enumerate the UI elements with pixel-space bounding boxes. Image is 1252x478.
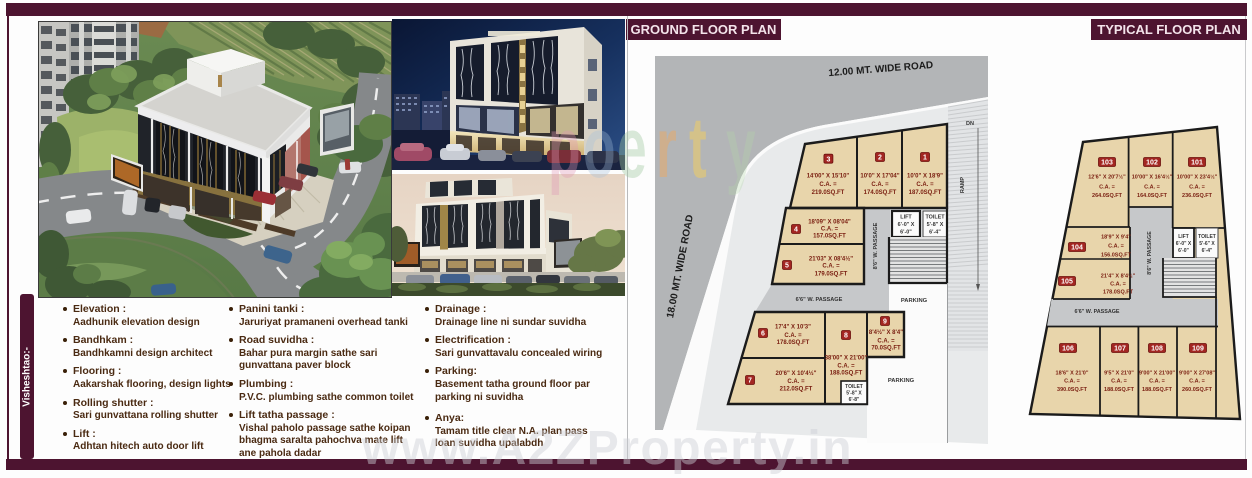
svg-text:188.0SQ.FT: 188.0SQ.FT [830,371,863,377]
svg-text:6'-0" X: 6'-0" X [1176,241,1192,247]
svg-text:18'09" X 08'04": 18'09" X 08'04" [808,219,851,225]
svg-text:C.A. =: C.A. = [877,338,895,344]
svg-text:188.0SQ.FT: 188.0SQ.FT [1104,387,1135,393]
svg-text:20'6" X 10'4½": 20'6" X 10'4½" [776,370,817,377]
svg-text:1: 1 [923,155,927,162]
svg-text:5: 5 [785,263,789,270]
svg-text:18'9" X 9'4": 18'9" X 9'4" [1101,234,1131,240]
svg-text:5'-8" X: 5'-8" X [927,222,944,228]
svg-text:6'-4": 6'-4" [929,230,941,236]
svg-text:TOILET: TOILET [925,215,945,221]
svg-text:C.A. =: C.A. = [1144,185,1160,191]
svg-text:5'-8" X: 5'-8" X [846,391,862,397]
svg-text:LIFT: LIFT [1178,234,1189,240]
svg-text:RAMP: RAMP [960,177,966,194]
svg-text:12'6" X 20'7½": 12'6" X 20'7½" [1088,174,1126,181]
svg-text:2: 2 [878,155,882,162]
svg-text:C.A. =: C.A. = [1111,379,1127,385]
svg-text:6'-4": 6'-4" [1202,248,1213,254]
svg-text:C.A. =: C.A. = [1064,379,1080,385]
svg-text:219.0SQ.FT: 219.0SQ.FT [812,190,845,196]
svg-text:PARKING: PARKING [901,298,928,304]
svg-text:102: 102 [1146,160,1158,167]
svg-text:10'0" X 18'9": 10'0" X 18'9" [907,174,943,180]
svg-text:14'00" X 15'10": 14'00" X 15'10" [807,174,850,180]
svg-text:187.0SQ.FT: 187.0SQ.FT [909,190,942,196]
svg-text:4: 4 [794,227,798,234]
svg-text:17'4" X 10'3": 17'4" X 10'3" [775,325,811,331]
svg-text:109: 109 [1192,346,1204,353]
svg-text:C.A. =: C.A. = [1099,185,1115,191]
svg-text:18'6" X 21'0": 18'6" X 21'0" [1056,371,1089,377]
svg-text:6'-0": 6'-0" [1178,248,1189,254]
svg-text:9'5" X 21'0": 9'5" X 21'0" [1104,371,1134,377]
svg-text:C.A. =: C.A. = [1110,282,1126,288]
svg-text:C.A. =: C.A. = [837,363,855,369]
svg-text:C.A. =: C.A. = [819,182,837,188]
svg-text:108: 108 [1151,346,1163,353]
svg-text:178.0SQ.FT: 178.0SQ.FT [777,340,810,346]
svg-text:9'00" X 27'08": 9'00" X 27'08" [1179,371,1215,377]
svg-text:106: 106 [1062,346,1074,353]
svg-text:10'0" X 17'04": 10'0" X 17'04" [860,174,899,180]
svg-text:10'00" X 23'4½": 10'00" X 23'4½" [1177,174,1218,181]
svg-text:TOILET: TOILET [845,384,863,390]
svg-text:21'03" X 08'4½": 21'03" X 08'4½" [809,256,853,263]
svg-text:8'6" W. PASSAGE: 8'6" W. PASSAGE [1147,231,1153,275]
svg-text:179.0SQ.FT: 179.0SQ.FT [815,271,848,277]
svg-text:10'00" X 16'4½": 10'00" X 16'4½" [1132,174,1173,181]
svg-text:PARKING: PARKING [888,378,915,384]
svg-text:107: 107 [1114,346,1126,353]
svg-text:TOILET: TOILET [1198,234,1216,240]
svg-text:7: 7 [748,378,752,385]
svg-text:5'-6" X: 5'-6" X [1199,241,1215,247]
svg-text:260.0SQ.FT: 260.0SQ.FT [1182,387,1213,393]
svg-text:C.A. =: C.A. = [871,182,889,188]
svg-text:188.0SQ.FT: 188.0SQ.FT [1142,387,1173,393]
svg-text:3: 3 [826,156,830,163]
svg-text:6'-0" X: 6'-0" X [898,222,915,228]
svg-text:38'00" X 21'00": 38'00" X 21'00" [825,356,868,362]
svg-text:C.A. =: C.A. = [787,379,805,385]
svg-text:9'00" X 21'00": 9'00" X 21'00" [1139,371,1175,377]
svg-text:C.A. =: C.A. = [1189,185,1205,191]
svg-text:6'6" W. PASSAGE: 6'6" W. PASSAGE [796,297,843,303]
svg-text:390.0SQ.FT: 390.0SQ.FT [1057,387,1088,393]
svg-text:105: 105 [1061,279,1073,286]
svg-text:178.0SQ.FT: 178.0SQ.FT [1103,290,1134,296]
svg-text:C.A. =: C.A. = [1149,379,1165,385]
svg-text:8: 8 [844,333,848,340]
svg-text:156.0SQ.FT: 156.0SQ.FT [1101,252,1132,258]
svg-text:6: 6 [761,331,765,338]
svg-text:LIFT: LIFT [900,215,912,221]
svg-text:C.A. =: C.A. = [916,182,934,188]
svg-text:101: 101 [1191,160,1203,167]
svg-text:C.A. =: C.A. = [784,333,802,339]
svg-text:C.A. =: C.A. = [1189,379,1205,385]
svg-text:9: 9 [883,319,887,326]
svg-text:103: 103 [1101,160,1113,167]
svg-text:212.0SQ.FT: 212.0SQ.FT [780,386,813,392]
svg-text:C.A. =: C.A. = [1108,243,1124,249]
svg-text:157.0SQ.FT: 157.0SQ.FT [813,234,846,240]
svg-text:C.A. =: C.A. = [822,264,840,270]
svg-text:DN: DN [966,121,974,127]
svg-text:21'4" X 8'4½": 21'4" X 8'4½" [1101,273,1136,280]
svg-text:6'6" W. PASSAGE: 6'6" W. PASSAGE [1074,309,1119,315]
svg-text:164.0SQ.FT: 164.0SQ.FT [1137,193,1168,199]
svg-text:6'-0": 6'-0" [900,230,912,236]
svg-text:6'-8": 6'-8" [849,397,860,403]
svg-text:C.A. =: C.A. = [821,227,839,233]
svg-text:70.0SQ.FT: 70.0SQ.FT [871,346,901,352]
svg-text:8'4½" X 8'4": 8'4½" X 8'4" [869,329,903,336]
svg-text:8'6" W. PASSAGE: 8'6" W. PASSAGE [873,222,879,269]
svg-text:264.0SQ.FT: 264.0SQ.FT [1092,193,1123,199]
svg-text:174.0SQ.FT: 174.0SQ.FT [864,190,897,196]
svg-text:104: 104 [1071,245,1083,252]
svg-text:236.0SQ.FT: 236.0SQ.FT [1182,193,1213,199]
